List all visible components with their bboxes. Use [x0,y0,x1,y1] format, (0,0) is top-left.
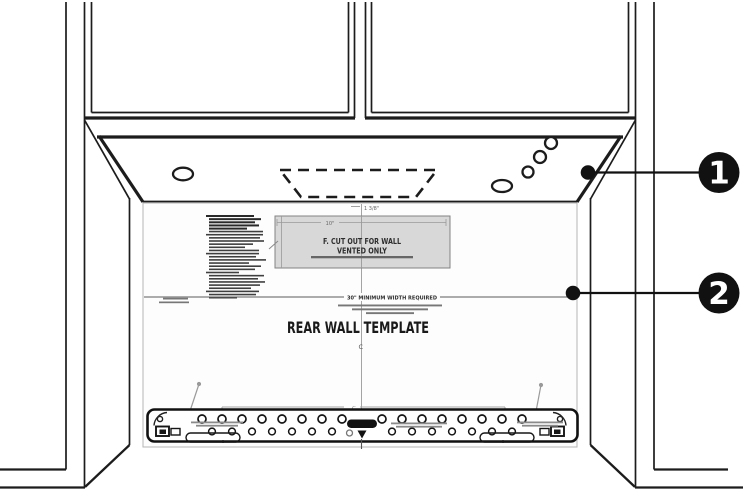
bracket-hole [438,415,446,423]
cutout-width-label: 10" [326,221,335,227]
greeked-text-line [209,287,251,289]
bracket-hole [298,415,306,423]
greeked-text-line [209,275,264,277]
bracket-hole [449,428,456,435]
greeked-text-line [338,305,442,307]
underside-left-edge-outer [85,120,130,199]
bracket-hole [209,428,216,435]
left-vent-oval [173,168,193,181]
greeked-text-line [206,215,254,217]
callout-2-anchor-dot [566,286,581,301]
bracket-hole [469,428,476,435]
greeked-text-line [206,272,239,274]
bracket-hole [289,428,296,435]
callout-2: 2 [566,273,740,314]
bracket-hole [418,415,426,423]
greeked-text-line [522,425,558,427]
underside-vent-holes [173,137,557,192]
vent-hole [534,151,546,163]
bracket-hole [258,415,266,423]
vent-cutout-dashed-outline [280,170,437,197]
callout-1-number: 1 [708,156,730,192]
greeked-text-line [209,250,259,252]
left-counter-angle [85,445,130,487]
top-dimension-label: 1 3/8" [364,206,379,212]
underside-right-edge-outer [591,120,636,199]
cutout-label-line1: F. CUT OUT FOR WALL [323,237,401,246]
greeked-text-line [209,284,260,286]
greeked-text-line [209,247,245,249]
vent-hole [545,137,557,149]
greeked-text-line [311,256,413,258]
greeked-text-line [206,234,263,236]
greeked-text-line [163,298,188,300]
greeked-text-line [209,278,258,280]
underside-left-edge-inner [99,136,143,202]
greeked-text-line [517,422,563,424]
left-cabinet-door [85,2,355,118]
bracket-hole [249,428,256,435]
greeked-text-line [209,243,253,245]
greeked-text-line [209,221,255,223]
greeked-text-line [209,259,266,261]
greeked-text-line [209,228,247,230]
greeked-text-line [352,308,428,310]
greeked-text-line [206,291,259,293]
bracket-hole [269,428,276,435]
right-vent-oval [492,180,512,192]
bracket-hole [378,415,386,423]
bracket-hole [389,428,396,435]
bracket-hole [309,428,316,435]
greeked-text-line [209,269,255,271]
installation-diagram: 1 3/8" 10" F. CUT OUT FOR WALL VENTED ON… [0,0,756,504]
centerline-symbol: C [359,343,364,351]
greeked-text-line [206,253,259,255]
greeked-text-line [366,312,414,314]
greeked-text-line [209,218,261,220]
greeked-text-line [209,240,264,242]
bracket-hole [489,428,496,435]
bracket-hole [318,415,326,423]
bracket-hole [478,415,486,423]
wall-vent-cutout-box: 10" F. CUT OUT FOR WALL VENTED ONLY [269,216,450,268]
callout-2-number: 2 [708,276,730,312]
cutout-fine-print [311,256,413,258]
bracket-hole [338,415,346,423]
greeked-text-line [209,224,259,226]
bracket-hole [498,415,506,423]
min-width-label: 30" MINIMUM WIDTH REQUIRED [347,296,437,302]
bracket-hole [398,415,406,423]
greeked-text-line [391,423,447,425]
bracket-hole [329,428,336,435]
template-title: REAR WALL TEMPLATE [287,318,429,337]
greeked-text-line [159,302,189,304]
greeked-text-line [196,425,238,427]
right-counter-angle [591,445,636,487]
greeked-text-line [209,262,249,264]
greeked-text-line [209,237,260,239]
bracket-hole [509,428,516,435]
right-cabinet-door [365,2,635,118]
greeked-text-line [191,422,243,424]
bracket-hole [458,415,466,423]
greeked-text-line [396,426,442,428]
callout-1-anchor-dot [581,165,596,180]
greeked-text-line [209,294,256,296]
bracket-hole [278,415,286,423]
bracket-hole [429,428,436,435]
vent-hole [523,167,534,178]
bracket-hole [229,428,236,435]
cutout-label-line2: VENTED ONLY [337,247,387,256]
diagram-canvas: 1 3/8" 10" F. CUT OUT FOR WALL VENTED ON… [0,0,756,504]
greeked-text-line [209,231,263,233]
greeked-text-line [209,265,261,267]
cabinet-underside-panel [85,120,636,202]
callouts: 1 2 [566,152,740,314]
bracket-hole [409,428,416,435]
greeked-text-line [209,256,256,258]
greeked-text-line [209,281,265,283]
